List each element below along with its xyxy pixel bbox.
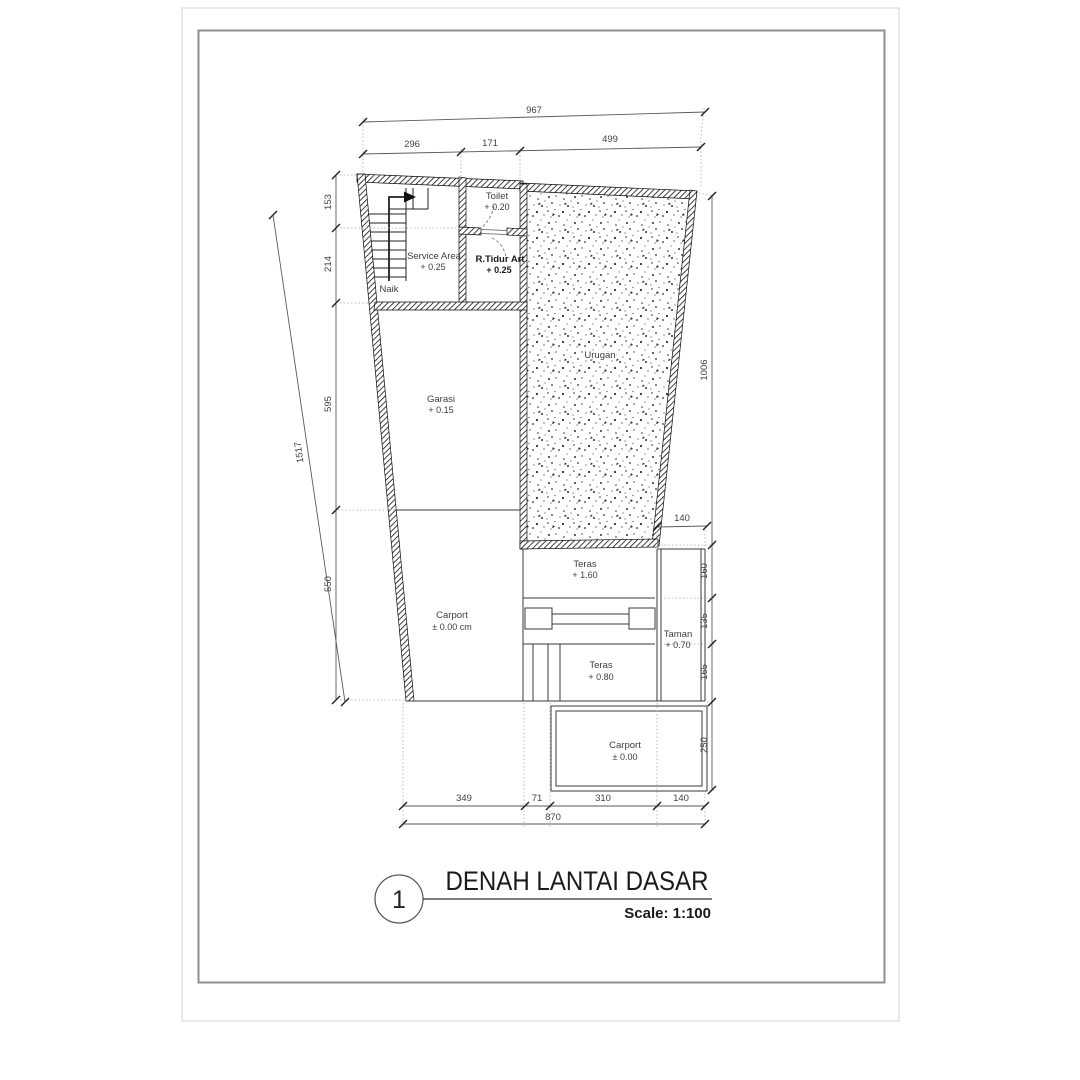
room-teras-upper-name: Teras (573, 559, 596, 570)
dim-bottom-seg-2: 71 (532, 793, 543, 804)
room-tidur-level: + 0.25 (486, 265, 511, 275)
dim-left-seg-2: 214 (323, 256, 334, 272)
drawing-scale: Scale: 1:100 (624, 905, 711, 922)
wall-urugan-left (520, 184, 527, 549)
room-taman-level: + 0.70 (665, 640, 690, 650)
dim-top-total: 967 (526, 105, 542, 116)
room-carport-front-level: ± 0.00 (613, 752, 638, 762)
dim-bottom-seg-4: 140 (673, 793, 689, 804)
room-teras-upper-level: + 1.60 (572, 570, 597, 580)
drawing-title: DENAH LANTAI DASAR (446, 866, 709, 896)
dim-right-seg-4: 250 (699, 737, 710, 753)
room-toilet-name: Toilet (486, 191, 509, 202)
floor-plan-sheet: 967 296 171 499 153 214 595 550 1517 100… (0, 0, 1080, 1080)
dim-right-seg-3: 165 (699, 664, 710, 680)
wall-service-bottom (374, 302, 527, 310)
dim-top-seg-3: 499 (602, 134, 618, 145)
dim-right-seg-1: 160 (699, 563, 710, 579)
dim-left-seg-3: 595 (323, 396, 334, 412)
stair-naik-label: Naik (379, 284, 398, 295)
dim-bottom-seg-1: 349 (456, 793, 472, 804)
wall-interior-vertical (459, 177, 466, 308)
dim-bottom-seg-3: 310 (595, 793, 611, 804)
room-garasi-name: Garasi (427, 394, 455, 405)
dim-taman-width: 140 (674, 513, 690, 524)
dim-right-seg-2: 135 (699, 613, 710, 629)
dim-top-seg-1: 296 (404, 139, 420, 150)
room-tidur-name: R.Tidur Art (475, 254, 525, 265)
room-teras-lower-level: + 0.80 (588, 672, 613, 682)
wall-urugan-bottom (520, 539, 658, 549)
dim-top-seg-2: 171 (482, 138, 498, 149)
room-garasi-level: + 0.15 (428, 405, 453, 415)
room-carport-main-level: ± 0.00 cm (432, 622, 471, 632)
room-carport-main-name: Carport (436, 610, 468, 621)
dim-left-seg-1: 153 (323, 194, 334, 210)
room-urugan-name: Urugan (584, 350, 615, 361)
dim-right-height: 1006 (699, 359, 710, 380)
room-taman-name: Taman (664, 629, 693, 640)
wall-toilet-right (507, 228, 527, 236)
room-carport-front-name: Carport (609, 740, 641, 751)
room-toilet-level: + 0.20 (484, 202, 509, 212)
room-teras-lower-name: Teras (589, 660, 612, 671)
drawing-number: 1 (392, 886, 406, 914)
dim-left-seg-4: 550 (323, 576, 334, 592)
dim-bottom-total: 870 (545, 812, 561, 823)
room-service-name: Service Area (407, 251, 462, 262)
wall-toilet-left (459, 227, 481, 235)
room-service-level: + 0.25 (420, 262, 445, 272)
